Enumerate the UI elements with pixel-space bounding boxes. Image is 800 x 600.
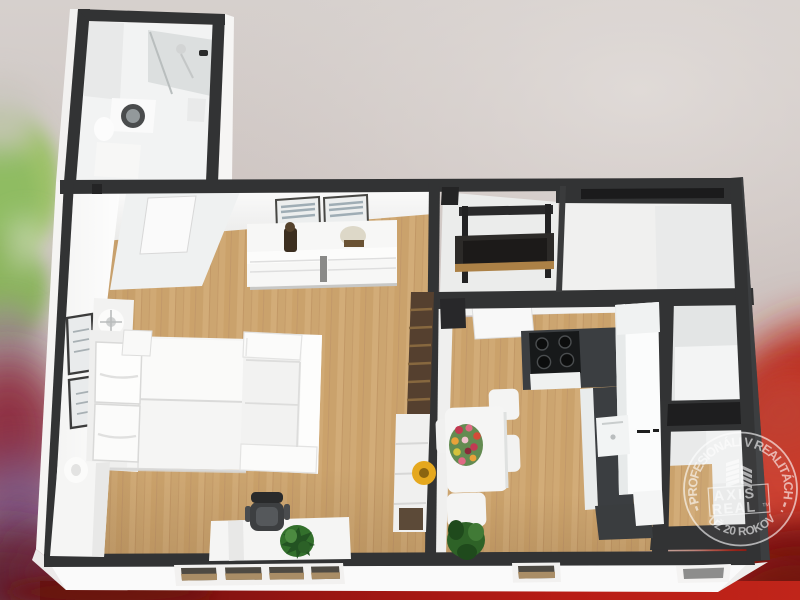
svg-text:TM: TM [762,502,770,508]
